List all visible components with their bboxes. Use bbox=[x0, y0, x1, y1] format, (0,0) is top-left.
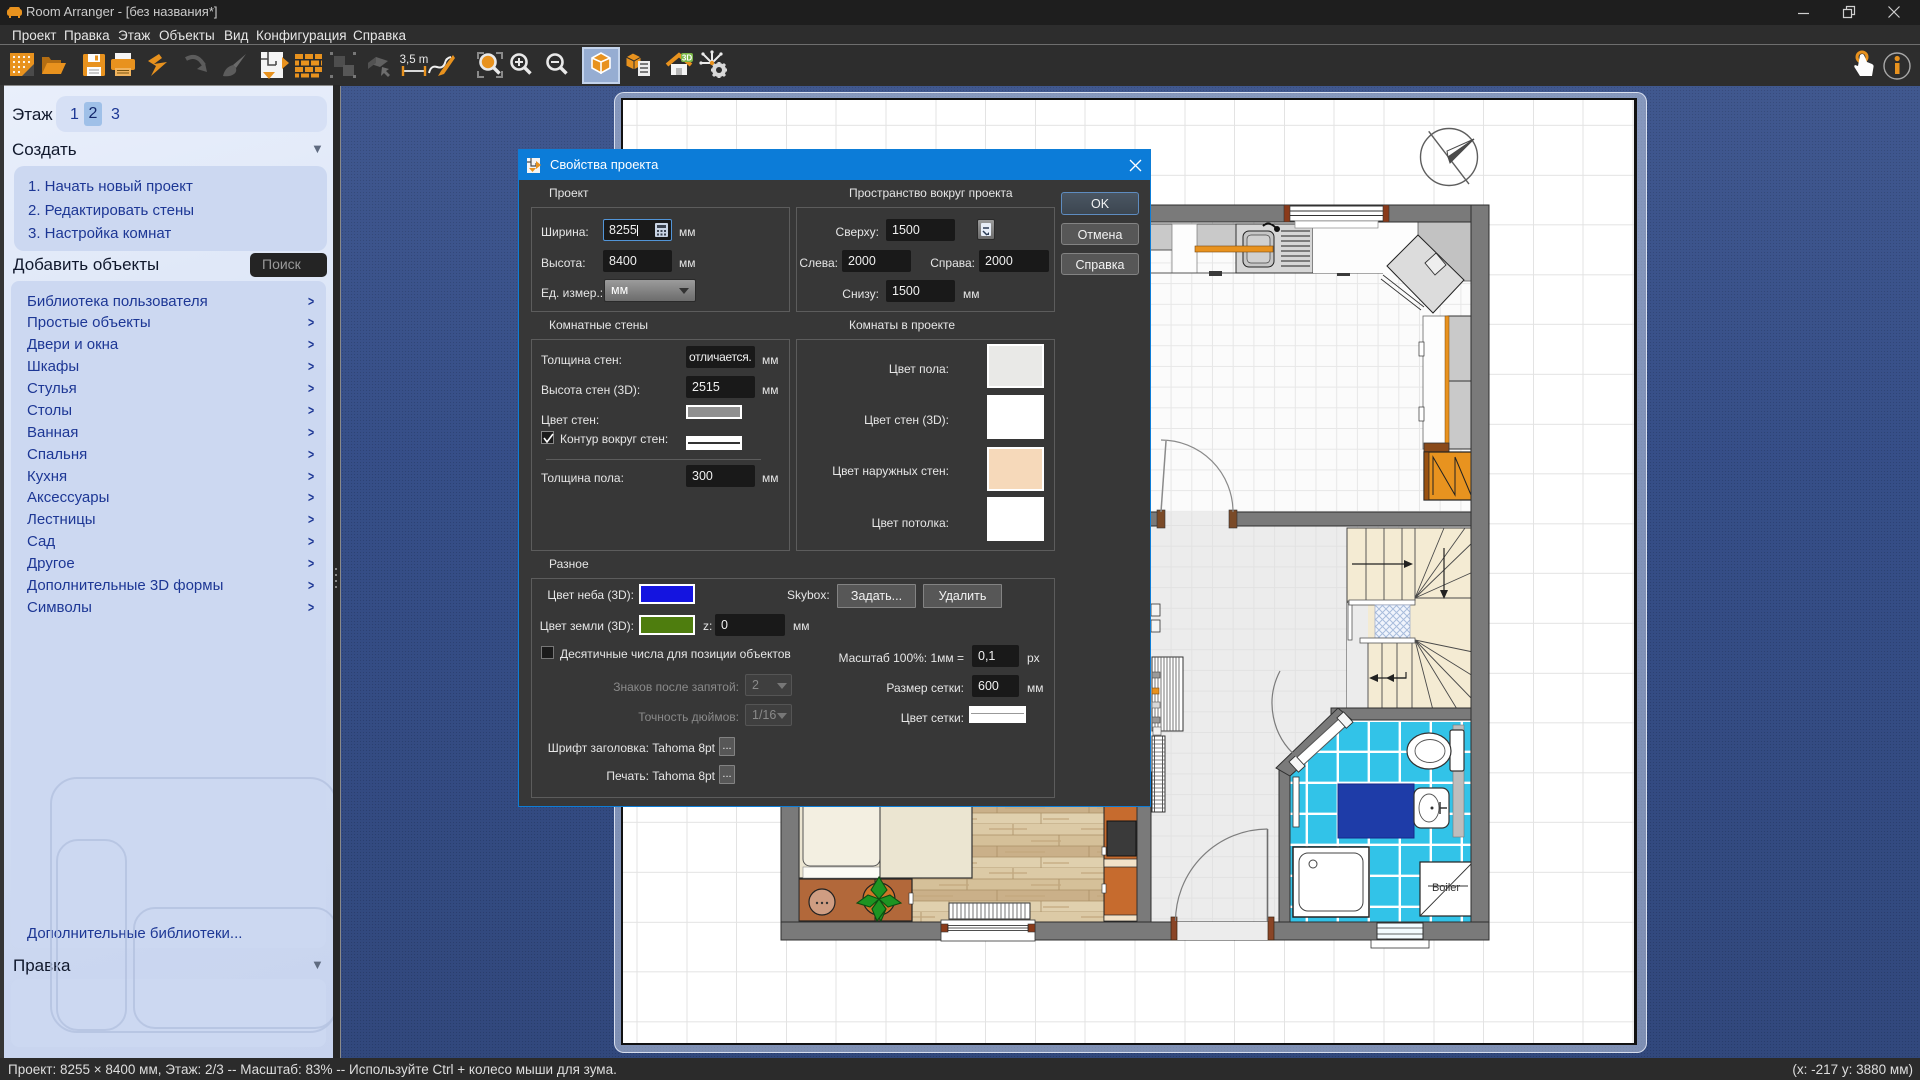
svg-text:3,5 m: 3,5 m bbox=[400, 54, 429, 66]
svg-text:Boiler: Boiler bbox=[1432, 882, 1460, 894]
svg-text:3D: 3D bbox=[682, 54, 692, 63]
